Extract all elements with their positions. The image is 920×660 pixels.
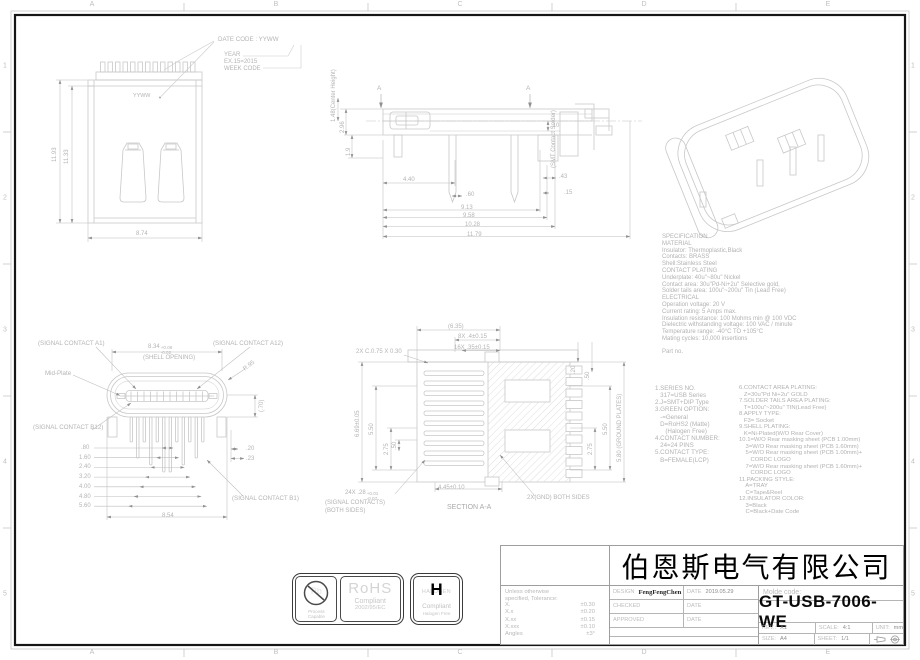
halogen-free-text: Halogen Free [414,611,458,616]
pitch-dim: 4.00 [79,484,91,490]
pitch-dim: 3.20 [79,474,91,480]
dim-label: .60 [466,192,474,198]
dim-label: 9.58 [463,213,475,219]
part-no-label: Part no. [662,349,683,355]
signal-contact-a1-label: (SIGNAL CONTACT A1) [38,341,105,347]
text-line: Operation voltage: 20 V [662,302,914,309]
side-view-drawing [366,104,642,202]
halogen-compliant: Compliant [414,603,458,610]
shell-opening-caption: (SHELL OPENING) [143,355,195,361]
text-line: Temperature range: -40°C TO +105°C [662,329,914,336]
size-sheet-row: SIZE:A4 SHEET:1/1 [759,634,903,645]
rev-scale-unit-row: REV.:X1 SCALE:4:1 UNIT:mm [759,623,903,634]
pb-rohs-logo: Pb ProcessCapable RoHS Compliant 2002/95… [292,573,404,625]
dim-label: .20 [246,446,254,452]
text-line: CONTACT PLATING [662,268,914,275]
dim-label: 2.75 [384,443,390,455]
dim-label: 2.96 [340,121,346,133]
dim-label: 5.80 (GROUND PLATES) [617,394,623,462]
dim-label: 11.79 [467,232,482,238]
mid-plate-label: Mid-Plate [45,371,71,377]
empty-row [610,637,758,646]
text-line: Contacts: BRASS [662,254,914,261]
text-line: -=General [655,414,745,421]
empty-row [610,628,758,637]
signal-contact-b1-label: (SIGNAL CONTACT B1) [232,496,299,502]
text-line: Contact area: 30u"Pd-Ni+2u" Selective go… [662,282,914,289]
pitch-dim: 5.60 [79,503,91,509]
tolerance-row: X.xx±0.15 [505,617,605,624]
face-view-drawing [107,373,227,472]
no-lead-icon [296,578,336,608]
dim-label: .15 [564,190,572,196]
dim-label: .23 [246,456,254,462]
text-line: Solder tails area: 100u"~200u" Tin (Lead… [662,288,914,295]
text-line: D=RoHS2 (Matte) [655,421,745,428]
third-angle-projection-icon [873,635,903,644]
notes-right-column: 6.CONTACT AREA PLATING: Z=30u"Pd Ni+2u" … [739,385,919,516]
chamfer-dim: 2X C.0.75 X 0.30 [356,349,402,355]
dim-label: .10 [551,123,559,129]
text-line: Dielectric withstanding voltage: 100 VAC… [662,322,914,329]
dim-label: 8.74 [136,231,148,237]
pitch-dim: 1.60 [79,455,91,461]
pitch-dim: 4.80 [79,494,91,500]
checked-row: CHECKED DATE [610,600,758,614]
tolerance-intro: specified, Tolerance: [505,596,605,603]
date-code-marking: YYWW [133,93,150,99]
dim-label: 5.50 [603,423,609,435]
section-marker: A [377,86,381,92]
notes-left-column: 1.SERIES NO. 317=USB Series2.J=SMT+DIP T… [655,385,745,464]
dim-label: (6.35) [448,324,464,330]
text-line: 24=24 PINS [655,442,745,449]
tolerance-block: Unless otherwise specified, Tolerance: X… [500,585,610,645]
dim-label: 10.28 [465,222,480,228]
date-code-note-title: DATE CODE : YYWW [218,37,279,43]
dim-label: 8.54 [162,513,174,519]
pb-caption: ProcessCapable [296,609,336,619]
text-line: 4.CONTACT NUMBER: [655,435,745,442]
tolerance-row: X.±0.30 [505,602,605,609]
drawing-sheet: A B C D E A B C D E 1 2 3 4 5 1 2 3 4 5 [0,0,920,660]
rohs-compliant: Compliant [341,598,400,605]
dim-label: 1.9 [346,148,352,156]
tolerance-row: X.xxx±0.10 [505,624,605,631]
text-line: Insulator: Thermoplastic,Black [662,248,914,255]
text-line: MATERIAL [662,241,914,248]
section-caption: SECTION A-A [447,505,491,511]
date-code-year-label: YEAR [224,52,240,58]
text-line: 2.J=SMT+DIP Type [655,399,745,406]
signal-contact-a12-label: (SIGNAL CONTACT A12) [213,341,283,347]
section-marker: A [526,86,530,92]
section-view-drawing [408,350,582,486]
text-line: Insulation resistance: 100 Mohms min @ 1… [662,316,914,323]
iso-view-drawing [662,69,878,243]
text-line: Shell:Stainless Steel [662,261,914,268]
dim-label: 1.48(Center Height) [331,69,337,122]
dim-label: .20 [571,366,577,374]
text-line: C=Black+Date Code [739,509,919,516]
dim-label: 9.13 [461,205,473,211]
dim-label: 11.93 [52,147,58,162]
text-line: 1.SERIES NO. [655,385,745,392]
rohs-logo: RoHS Compliant 2002/95/EC [340,576,401,621]
tolerance-intro: Unless otherwise [505,589,605,596]
side-view-dim-lines [338,94,630,239]
top-view-drawing [88,42,214,223]
tolerance-row: X.x±0.20 [505,609,605,616]
text-line: Underplate: 40u"~80u" Nickel [662,275,914,282]
dim-label: 5.50 [369,423,375,435]
company-name: 伯恩斯电气有限公司 [609,545,904,586]
signoff-block: DESIGNFengFengChen DATE2019.05.29 CHECKE… [609,585,759,645]
gnd-label: 2X(GND) BOTH SIDES [527,495,590,501]
dim-label: 6.69±0.05 [355,410,361,437]
contacts-dim-line2: (SIGNAL CONTACTS) [325,500,385,506]
pb-free-logo: Pb ProcessCapable [295,576,337,621]
dim-label: (SMT Contact Solder) [551,110,557,168]
pitch-dim: .80 [81,445,89,451]
part-info-block: Molde code: GT-USB-7006-WE REV.:X1 SCALE… [758,585,904,645]
design-row: DESIGNFengFengChen DATE2019.05.29 [610,586,758,600]
dim-label: .50 [392,442,398,450]
date-code-year-example: EX.15=2015 [224,59,257,65]
contacts-dim-line3: (BOTH SIDES) [325,508,365,514]
approved-row: APPROVED DATE [610,614,758,628]
text-line: (Halogen Free) [655,428,745,435]
dim-label: 8X .4±0.15 [458,334,487,340]
dim-label: .50 [585,372,591,380]
text-line: 5.CONTACT TYPE: [655,449,745,456]
halogen-cell: HALOGEN H Compliant Halogen Free [413,576,459,621]
signal-contact-b12-label: (SIGNAL CONTACT B12) [33,425,103,431]
halogen-free-logo: HALOGEN H Compliant Halogen Free [410,573,463,625]
rohs-directive: 2002/95/EC [341,605,400,611]
text-line: Current rating: 5 Amps max. [662,309,914,316]
dim-label: 4.40 [403,177,415,183]
dim-label: 2.75 [588,443,594,455]
text-line: Mating cycles: 10,000 insertions [662,336,914,343]
specification-block: SPECIFICATIONMATERIALInsulator: Thermopl… [662,234,914,343]
dim-label: 4.45±0.10 [438,485,465,491]
dim-label: 16X .35±0.15 [454,345,490,351]
pitch-dim: 2.40 [79,464,91,470]
text-line: ELECTRICAL [662,295,914,302]
part-number: GT-USB-7006-WE [759,601,903,623]
dim-label: (.70) [259,400,265,412]
text-line: 317=USB Series [655,392,745,399]
title-block-empty-cell [500,545,610,586]
text-line: SPECIFICATION [662,234,914,241]
rohs-title: RoHS [341,580,400,597]
halogen-h: H [414,580,458,600]
text-line: 3.GREEN OPTION: [655,406,745,413]
text-line: B=FEMALE(LCP) [655,457,745,464]
shell-opening-dim: 8.34+0.06-0.02 [148,344,172,356]
date-code-week-label: WEEK CODE [224,66,261,72]
dim-label: 11.33 [64,149,70,164]
tolerance-row: Angles±3° [505,631,605,638]
dim-label: .43 [559,174,567,180]
